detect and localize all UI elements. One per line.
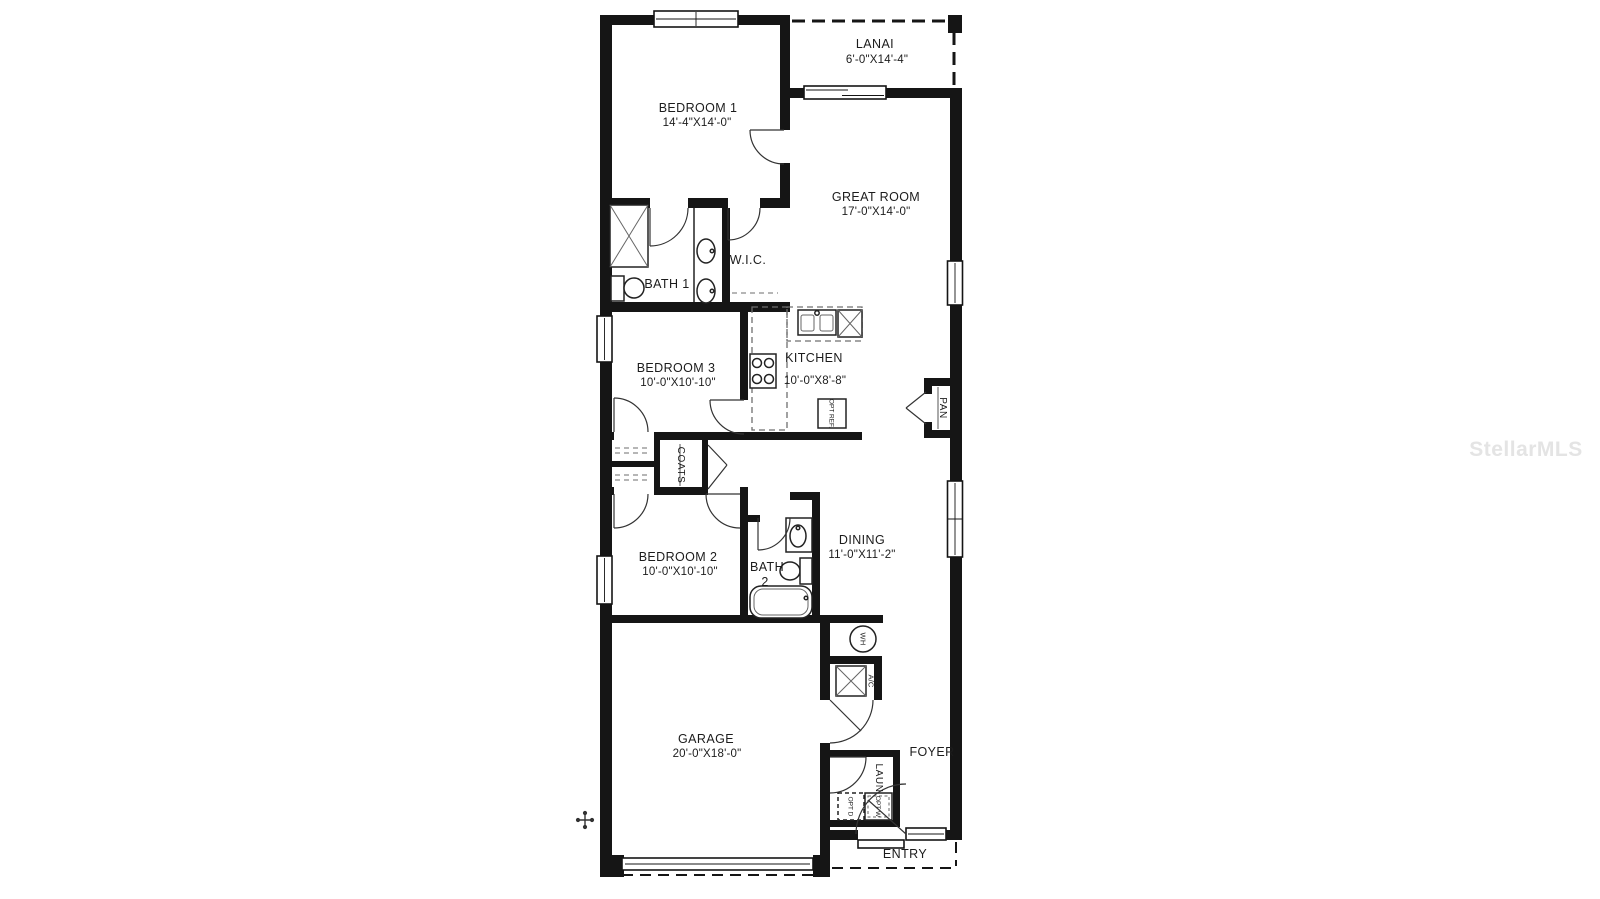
bedroom3-label: BEDROOM 3 — [637, 361, 716, 375]
pantry-label: PAN — [937, 397, 948, 419]
opt-dryer-label: OPT D — [847, 797, 854, 817]
floor-plan-svg: OPT REF. WH A/C OPT D — [0, 0, 1600, 899]
kitchen-sink-icon — [798, 310, 836, 335]
shower-icon — [610, 205, 648, 267]
windows — [597, 11, 963, 870]
entry-label: ENTRY — [883, 847, 927, 861]
wic-label: W.I.C. — [730, 253, 766, 267]
linen-shelf-top — [615, 448, 651, 453]
great-room-window-icon — [948, 261, 963, 305]
toilet-bath2-icon — [780, 558, 812, 584]
opt-refrigerator-box: OPT REF. — [818, 399, 846, 428]
opt-washer-box: OPT W — [865, 793, 892, 820]
great-room-dims: 17'-0"X14'-0" — [842, 206, 911, 218]
coats-label: COATS — [675, 447, 686, 484]
sliding-glass-door-icon — [804, 86, 886, 99]
bedroom3-closet-door — [614, 398, 648, 432]
shelving-and-counters — [615, 293, 938, 486]
water-heater-label: WH — [859, 633, 868, 646]
bedroom1-label: BEDROOM 1 — [659, 101, 738, 115]
kitchen-dims: 10'-0"X8'-8" — [784, 375, 846, 387]
ac-unit-label: A/C — [867, 674, 876, 687]
bath2-door — [758, 518, 790, 550]
fixtures: OPT REF. WH A/C OPT D — [610, 205, 892, 820]
bedroom3-door — [710, 400, 744, 434]
dining-dims: 11'-0"X11'-2" — [828, 549, 895, 561]
opt-dryer-box: OPT D — [838, 793, 864, 820]
lanai-label: LANAI — [856, 37, 894, 51]
kitchen-label: KITCHEN — [785, 351, 843, 365]
toilet-bath1-icon — [611, 276, 644, 301]
interior-walls — [600, 15, 950, 877]
opt-refrigerator-label: OPT REF. — [828, 399, 835, 428]
linen-shelf-bottom — [615, 475, 651, 480]
foyer-label: FOYER — [909, 745, 954, 759]
garage-interior-door — [830, 700, 873, 743]
water-heater-icon: WH — [850, 626, 876, 652]
bath1-label: BATH 1 — [644, 277, 689, 291]
room-labels: LANAI 6'-0"X14'-4" BEDROOM 1 14'-4"X14'-… — [637, 37, 955, 861]
coats-door — [708, 445, 727, 489]
bedroom1-window-icon — [654, 11, 738, 27]
dishwasher-icon — [838, 310, 862, 337]
dashed-outlines — [622, 21, 956, 875]
ac-unit-icon: A/C — [836, 666, 876, 696]
pantry-door — [906, 392, 926, 424]
lanai-dims: 6'-0"X14'-4" — [846, 54, 908, 66]
dining-label: DINING — [839, 533, 885, 547]
vanity-bath1-icon — [694, 208, 715, 303]
watermark-text: StellarMLS — [1469, 438, 1583, 461]
door-swings — [614, 130, 926, 834]
bath1-door — [650, 208, 688, 246]
laundry-label: LAUN — [873, 763, 884, 792]
bathtub-icon — [750, 586, 812, 618]
wic-door — [728, 208, 760, 240]
bedroom3-dims: 10'-0"X10'-10" — [640, 377, 715, 389]
bedroom2-label: BEDROOM 2 — [639, 550, 718, 564]
bedroom1-dims: 14'-4"X14'-0" — [663, 117, 732, 129]
bedroom1-door — [750, 130, 784, 164]
garage-door-icon — [622, 858, 813, 870]
bedroom2-dims: 10'-0"X10'-10" — [642, 566, 717, 578]
garage-dims: 20'-0"X18'-0" — [673, 748, 742, 760]
bath2-label: BATH — [750, 560, 784, 574]
bedroom2-door — [706, 494, 740, 528]
bedroom2-closet-door — [614, 494, 648, 528]
range-icon — [750, 354, 776, 388]
great-room-label: GREAT ROOM — [832, 190, 920, 204]
bath2-number: 2 — [761, 575, 768, 589]
bedroom2-window-icon — [597, 556, 612, 604]
floor-plan: OPT REF. WH A/C OPT D — [0, 0, 1600, 899]
entry-sidelight-window-icon — [906, 828, 946, 840]
dining-window-icon — [948, 481, 963, 557]
bedroom3-window-icon — [597, 316, 612, 362]
crosshair-marker — [577, 812, 594, 829]
garage-label: GARAGE — [678, 732, 734, 746]
laundry-door — [830, 757, 866, 793]
